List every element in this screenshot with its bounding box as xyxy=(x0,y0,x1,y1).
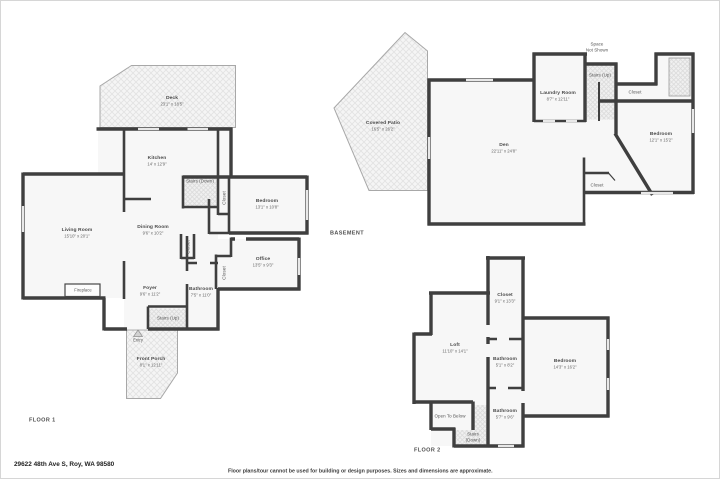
floor2-room-fills xyxy=(414,258,608,448)
basement-plan xyxy=(334,33,695,226)
stairs-up-area xyxy=(150,309,187,329)
floorplan-drawing xyxy=(1,1,720,479)
floorplan-page: Deck 23'1" x 18'5" Kitchen 14' x 12'9" S… xyxy=(0,0,720,479)
floor2-corner-cut xyxy=(413,291,432,334)
deck-area xyxy=(100,66,236,128)
basement-chase-area xyxy=(669,58,690,96)
floor2-stairs-box-area xyxy=(456,430,488,446)
fireplace-box xyxy=(65,284,100,297)
covered-patio-area xyxy=(334,33,428,191)
disclaimer-wrap: Floor plans/tour cannot be used for buil… xyxy=(1,463,719,479)
floor1-plan xyxy=(23,66,309,399)
stairs-down-area xyxy=(185,179,217,207)
floor2-plan xyxy=(413,256,610,448)
front-porch-area xyxy=(127,330,178,399)
disclaimer-text: Floor plans/tour cannot be used for buil… xyxy=(228,468,493,474)
basement-stairs-area xyxy=(587,66,615,120)
